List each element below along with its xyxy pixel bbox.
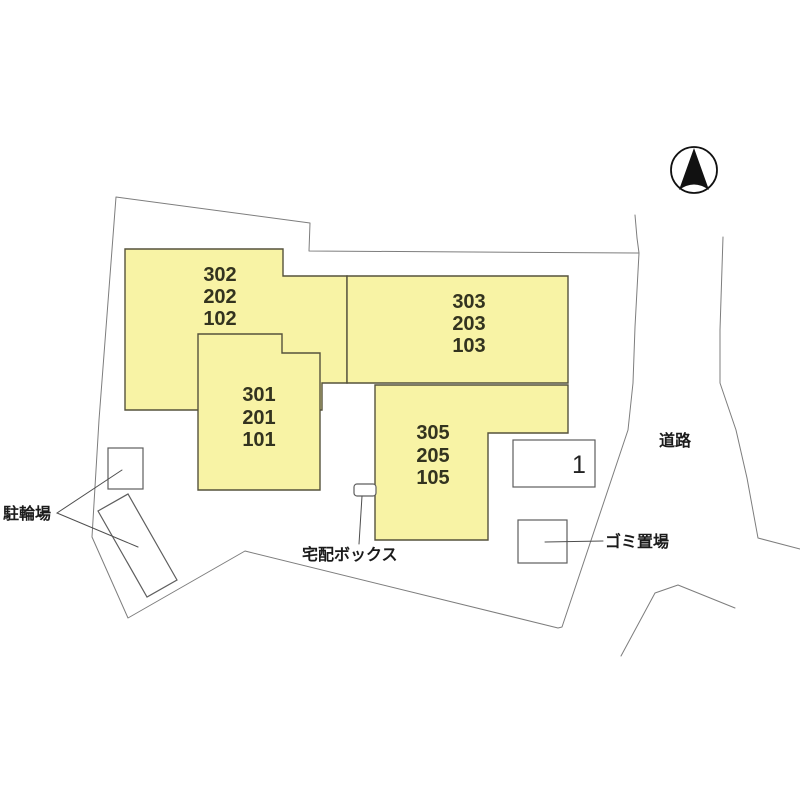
unit-102-label: 102 [203, 308, 236, 330]
site-plan-canvas: 302 202 102 303 203 103 301 201 101 305 … [0, 0, 800, 800]
unit-301-label: 301 [242, 384, 275, 406]
delivery-box-label: 宅配ボックス [302, 545, 398, 564]
road-left-edge [635, 215, 639, 253]
unit-101-label: 101 [242, 429, 275, 451]
unit-205-label: 205 [416, 445, 449, 467]
unit-305-label: 305 [416, 422, 449, 444]
building-shapes [125, 249, 568, 540]
site-plan-drawing: 302 202 102 303 203 103 301 201 101 305 … [0, 0, 800, 800]
garbage-area-label: ゴミ置場 [605, 532, 669, 551]
unit-103-label: 103 [452, 335, 485, 357]
road-right-edge [720, 237, 800, 549]
bicycle-parking-label: 駐輪場 [3, 504, 51, 523]
road-lower-edge [621, 585, 735, 656]
bicycle-parking-square [108, 448, 143, 489]
unit-201-label: 201 [242, 407, 275, 429]
unit-303-label: 303 [452, 291, 485, 313]
bicycle-parking-rack [98, 494, 177, 597]
parking-space-number: 1 [572, 451, 586, 479]
delivery-box-shape [354, 484, 376, 496]
unit-202-label: 202 [203, 286, 236, 308]
delivery-box-leader-line [359, 496, 362, 544]
unit-105-label: 105 [416, 467, 449, 489]
unit-302-label: 302 [203, 264, 236, 286]
north-arrow-icon [671, 147, 717, 193]
road-label: 道路 [659, 431, 692, 450]
unit-203-label: 203 [452, 313, 485, 335]
